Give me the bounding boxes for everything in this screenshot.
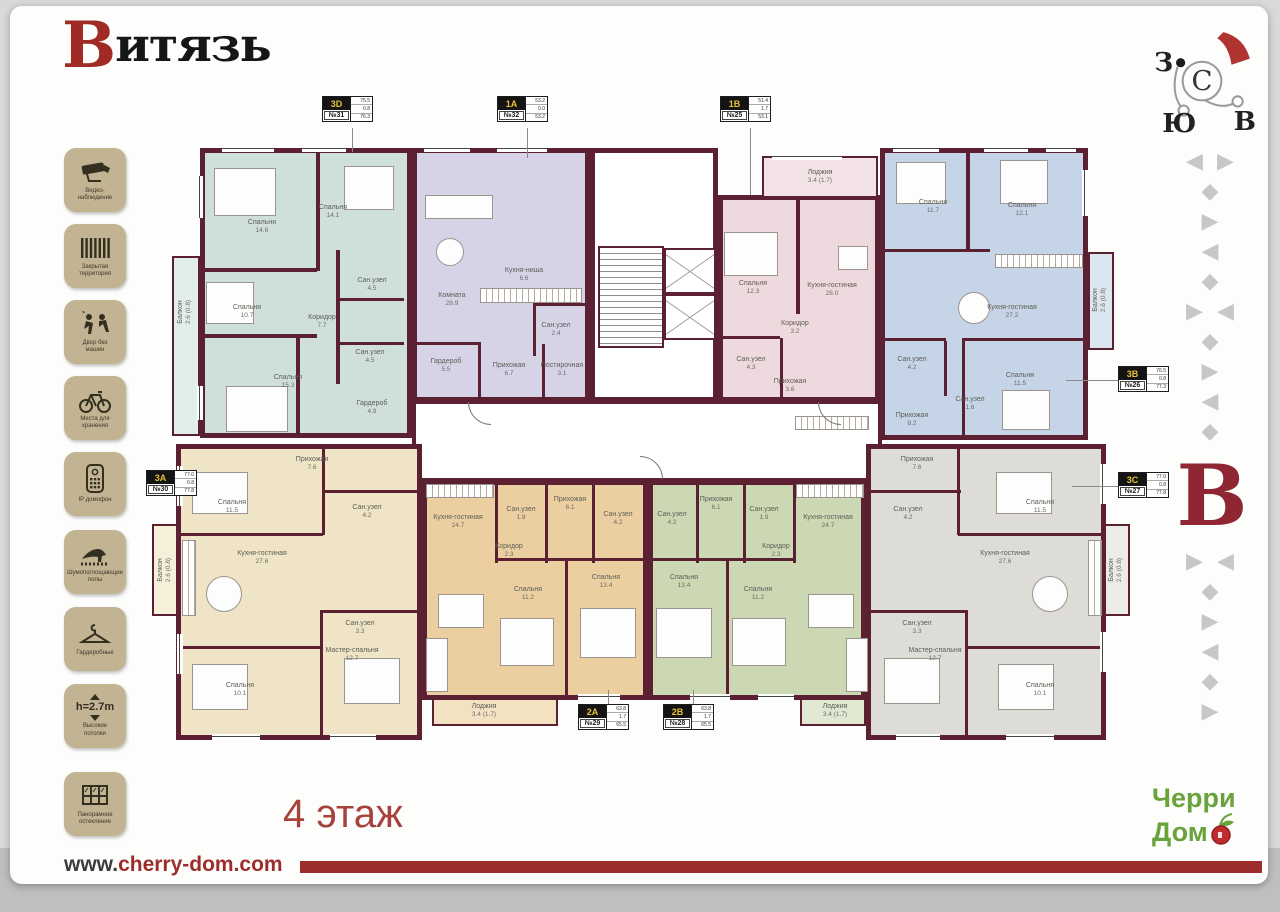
window bbox=[177, 634, 183, 674]
wall bbox=[958, 533, 1103, 536]
feature-wardrobes: Гардеробные bbox=[64, 607, 126, 671]
wall bbox=[545, 483, 548, 563]
room-label: Спальня10.1 bbox=[226, 681, 254, 699]
wall bbox=[323, 610, 419, 613]
kitchen-counter bbox=[796, 484, 864, 498]
window bbox=[330, 734, 376, 740]
wall bbox=[796, 200, 800, 314]
room-label: Спальня10.7 bbox=[233, 303, 261, 321]
room-label: Прихожая6.1 bbox=[554, 495, 586, 513]
room-label: Сан.узел4.2 bbox=[893, 505, 922, 523]
room-label: Сан.узел4.5 bbox=[357, 276, 386, 294]
apartment-badge-3b[interactable]: 3B№26 76.50.877.3 bbox=[1118, 366, 1169, 392]
cctv-camera-icon bbox=[78, 158, 112, 186]
window bbox=[772, 154, 842, 160]
furniture-table bbox=[206, 576, 242, 612]
furniture-table bbox=[438, 594, 484, 628]
wall bbox=[866, 490, 961, 493]
room-label: Прихожая6.1 bbox=[700, 495, 732, 513]
feature-closed-territory: Закрытаятерритория bbox=[64, 224, 126, 288]
apartment-badge-3a[interactable]: 3A№30 77.00.877.8 bbox=[146, 470, 197, 496]
apartment-badge-2b[interactable]: 2B№28 63.81.765.5 bbox=[663, 704, 714, 730]
room-label: Кухня-гостиная24.7 bbox=[803, 513, 853, 531]
furniture-sofa bbox=[426, 638, 448, 692]
badge-leader-line bbox=[352, 128, 353, 152]
feature-car-free-yard: Двор безмашин bbox=[64, 300, 126, 364]
window bbox=[893, 146, 939, 152]
wall bbox=[966, 153, 970, 251]
room-label: Спальня13.4 bbox=[670, 573, 698, 591]
arrow-up-icon bbox=[90, 694, 100, 700]
wall bbox=[478, 342, 481, 398]
wall bbox=[181, 646, 321, 649]
wall bbox=[181, 533, 323, 536]
wall bbox=[336, 342, 404, 345]
room-label: Прихожая6.7 bbox=[493, 361, 525, 379]
wall bbox=[743, 483, 746, 563]
room-label: Спальня12.3 bbox=[739, 279, 767, 297]
wall bbox=[944, 341, 947, 396]
furniture-table bbox=[436, 238, 464, 266]
room-label: Сан.узел3.3 bbox=[345, 619, 374, 637]
elevator-shaft bbox=[664, 248, 716, 294]
room-label: Сан.узел1.9 bbox=[506, 505, 535, 523]
room-label: Спальня14.1 bbox=[319, 203, 347, 221]
badge-leader-line bbox=[1072, 486, 1118, 487]
developer-logo: Черри Дом bbox=[1152, 786, 1238, 846]
hanger-icon bbox=[78, 620, 112, 648]
wall bbox=[884, 338, 946, 341]
feature-storage: Места дляхранения bbox=[64, 376, 126, 440]
room-label: Коридор3.2 bbox=[781, 319, 809, 337]
furniture-bed bbox=[344, 658, 400, 704]
room-label: Спальня14.6 bbox=[248, 218, 276, 236]
fence-icon bbox=[78, 234, 112, 262]
furniture-bed bbox=[226, 386, 288, 432]
wall bbox=[592, 483, 595, 563]
room-label: Сан.узел1.9 bbox=[749, 505, 778, 523]
room-label: Сан.узел1.6 bbox=[955, 395, 984, 413]
furniture-bed bbox=[344, 166, 394, 210]
room-label: Мастер-спальня12.7 bbox=[325, 646, 378, 664]
wall bbox=[205, 268, 317, 272]
intercom-icon bbox=[80, 463, 110, 495]
staircase bbox=[598, 246, 664, 348]
room-label: Прихожая3.6 bbox=[774, 377, 806, 395]
furniture-sofa bbox=[846, 638, 868, 692]
furniture-bed bbox=[214, 168, 276, 216]
furniture-bed bbox=[884, 658, 940, 704]
apartment-badge-3c[interactable]: 3C№27 77.00.877.8 bbox=[1118, 472, 1169, 498]
compass-west-label: З bbox=[1154, 47, 1173, 78]
window bbox=[197, 386, 203, 420]
furniture-sofa bbox=[425, 195, 493, 219]
wall bbox=[414, 342, 480, 345]
feature-panoramic-glazing: Панорамноеостекление bbox=[64, 772, 126, 836]
apartment-badge-1b[interactable]: 1B№25 51.41.753.1 bbox=[720, 96, 771, 122]
cherry-icon bbox=[1208, 812, 1238, 846]
room-label: Спальня11.7 bbox=[919, 198, 947, 216]
window bbox=[896, 734, 940, 740]
room-label: Гардероб4.9 bbox=[357, 399, 388, 417]
room-label: Прихожая7.6 bbox=[296, 455, 328, 473]
window bbox=[1006, 734, 1054, 740]
arrow-down-icon bbox=[90, 715, 100, 721]
kitchen-counter bbox=[1088, 540, 1102, 616]
website-url[interactable]: www.cherry-dom.com bbox=[64, 853, 283, 877]
ornament-strip: ◀ ▶◆ ▶◀ ◆▶ ◀ ◆▶ ◀◆ В ▶ ◀◆ ▶◀ ◆▶ bbox=[1162, 146, 1262, 726]
feature-high-ceilings: h=2.7m Высокиепотолки bbox=[64, 684, 126, 748]
room-label: Гардероб5.5 bbox=[431, 357, 462, 375]
window bbox=[984, 146, 1028, 152]
room-label: Спальня11.5 bbox=[1026, 498, 1054, 516]
badge-leader-line bbox=[608, 690, 609, 704]
window bbox=[424, 146, 470, 152]
feature-video-surveillance: Видео-наблюдение bbox=[64, 148, 126, 212]
room-label: Спальня11.5 bbox=[1006, 371, 1034, 389]
furniture-bed bbox=[580, 608, 636, 658]
window bbox=[1046, 146, 1076, 152]
wall bbox=[336, 250, 340, 384]
furniture-table bbox=[838, 246, 868, 270]
room-label: Сан.узел4.5 bbox=[355, 348, 384, 366]
window bbox=[1100, 464, 1106, 504]
furniture-bed bbox=[732, 618, 786, 666]
furniture-table bbox=[958, 292, 990, 324]
room-label: Сан.узел4.2 bbox=[657, 510, 686, 528]
window bbox=[497, 146, 547, 152]
room-label: Кухня-гостиная24.7 bbox=[433, 513, 483, 531]
room-label: Сан.узел4.2 bbox=[352, 503, 381, 521]
room-label: Лоджия3.4 (1.7) bbox=[472, 702, 497, 720]
badge-leader-line bbox=[693, 690, 694, 704]
room-label: Лоджия3.4 (1.7) bbox=[823, 702, 848, 720]
room-label: Кухня-гостиная27.2 bbox=[987, 303, 1037, 321]
room-label: Спальня11.2 bbox=[744, 585, 772, 603]
developer-logo-line2: Дом bbox=[1152, 820, 1208, 846]
apartment-badge-2a[interactable]: 2A№29 63.81.765.5 bbox=[578, 704, 629, 730]
wall bbox=[726, 561, 729, 698]
room-label: Коридор2.3 bbox=[495, 542, 523, 560]
feature-soundproof-floors: Шумопоглощающиеполы bbox=[64, 530, 126, 594]
wall bbox=[966, 646, 1104, 649]
room-label: Спальня12.1 bbox=[1008, 201, 1036, 219]
heel-shoe-icon bbox=[78, 540, 112, 568]
room-label: Спальня11.5 bbox=[218, 498, 246, 516]
elevator-shaft bbox=[664, 294, 716, 340]
room-label: Спальня15.3 bbox=[274, 373, 302, 391]
logo-initial: В bbox=[62, 8, 115, 83]
window bbox=[197, 176, 203, 218]
developer-logo-line1: Черри bbox=[1152, 786, 1238, 812]
window bbox=[578, 694, 620, 700]
window bbox=[222, 146, 274, 152]
wall bbox=[962, 341, 965, 437]
room-label: Прихожая8.2 bbox=[896, 411, 928, 429]
furniture-bed bbox=[1000, 160, 1048, 204]
wall bbox=[205, 334, 317, 338]
room-label: Спальня10.1 bbox=[1026, 681, 1054, 699]
compass-south-label: Ю bbox=[1162, 108, 1196, 134]
room-label: Балкон2.6 (0.8) bbox=[1091, 288, 1109, 312]
kitchen-counter bbox=[182, 540, 196, 616]
furniture-bed bbox=[724, 232, 778, 276]
room-label: Сан.узел2.4 bbox=[541, 321, 570, 339]
window bbox=[1100, 632, 1106, 672]
window bbox=[212, 734, 260, 740]
furniture-bed bbox=[500, 618, 554, 666]
apartment-badge-1a[interactable]: 1A№32 53.20.053.2 bbox=[497, 96, 548, 122]
window bbox=[302, 146, 346, 152]
room-label: Коридор7.7 bbox=[308, 313, 336, 331]
room-label: Мастер-спальня12.7 bbox=[908, 646, 961, 664]
kitchen-counter bbox=[995, 254, 1083, 268]
wall bbox=[565, 561, 568, 698]
feature-ip-intercom: IP домофон bbox=[64, 452, 126, 516]
wall bbox=[722, 336, 780, 339]
room-label: Кухня-гостиная27.6 bbox=[980, 549, 1030, 567]
wall bbox=[533, 306, 536, 356]
compass-red-arrow bbox=[1217, 32, 1250, 65]
badge-leader-line bbox=[1066, 380, 1118, 381]
poster-page: Витязь С З Ю В Видео-наблюдение Закрытая… bbox=[0, 0, 1280, 912]
ceiling-height-value: h=2.7m bbox=[76, 702, 114, 713]
project-logo: Витязь bbox=[62, 18, 271, 73]
room-label: Постирочная3.1 bbox=[541, 361, 583, 379]
badge-leader-line bbox=[527, 128, 528, 158]
wall bbox=[696, 483, 699, 563]
wall bbox=[868, 610, 965, 613]
window-icon bbox=[78, 782, 112, 810]
furniture-bed bbox=[656, 608, 712, 658]
furniture-table bbox=[808, 594, 854, 628]
compass-icon: С З Ю В bbox=[1146, 22, 1258, 134]
room-label: Сан.узел4.2 bbox=[897, 355, 926, 373]
room-label: Кухня-гостиная28.0 bbox=[807, 281, 857, 299]
wall bbox=[320, 610, 323, 736]
window bbox=[690, 694, 730, 700]
room-label: Кухня-ниша6.6 bbox=[505, 266, 543, 284]
balcony-3d bbox=[172, 256, 200, 436]
room-label: Сан.узел3.3 bbox=[902, 619, 931, 637]
furniture-bed bbox=[1002, 390, 1050, 430]
wall bbox=[962, 338, 1084, 341]
room-label: Сан.узел4.2 bbox=[603, 510, 632, 528]
room-label: Лоджия3.4 (1.7) bbox=[808, 168, 833, 186]
footer-red-bar bbox=[300, 861, 1262, 873]
furniture-table bbox=[1032, 576, 1068, 612]
kitchen-counter bbox=[480, 288, 582, 303]
window bbox=[1082, 170, 1088, 216]
room-label: Комната28.9 bbox=[438, 291, 465, 309]
compass-north-label: С bbox=[1191, 65, 1212, 97]
kitchen-counter bbox=[426, 484, 494, 498]
wall bbox=[325, 490, 420, 493]
bicycle-icon bbox=[78, 386, 112, 414]
children-playing-icon bbox=[78, 310, 112, 338]
apartment-badge-3d[interactable]: 3D№31 75.50.876.3 bbox=[322, 96, 373, 122]
wall bbox=[533, 303, 587, 306]
room-label: Балкон2.6 (0.8) bbox=[156, 558, 174, 582]
room-label: Спальня13.4 bbox=[592, 573, 620, 591]
room-label: Прихожая7.6 bbox=[901, 455, 933, 473]
wall bbox=[336, 298, 404, 301]
room-label: Спальня11.2 bbox=[514, 585, 542, 603]
room-label: Балкон2.6 (0.8) bbox=[1107, 558, 1125, 582]
room-label: Коридор2.3 bbox=[762, 542, 790, 560]
ornament-initial-letter: В bbox=[1162, 446, 1262, 546]
wall bbox=[965, 610, 968, 736]
logo-rest: итязь bbox=[115, 18, 271, 73]
compass-east-label: В bbox=[1234, 106, 1256, 134]
window bbox=[758, 694, 794, 700]
room-label: Балкон2.6 (0.8) bbox=[176, 300, 194, 324]
room-label: Кухня-гостиная27.6 bbox=[237, 549, 287, 567]
floor-number-label: 4 этаж bbox=[283, 792, 403, 837]
room-label: Сан.узел4.3 bbox=[736, 355, 765, 373]
wall bbox=[884, 249, 990, 252]
badge-leader-line bbox=[750, 128, 751, 195]
